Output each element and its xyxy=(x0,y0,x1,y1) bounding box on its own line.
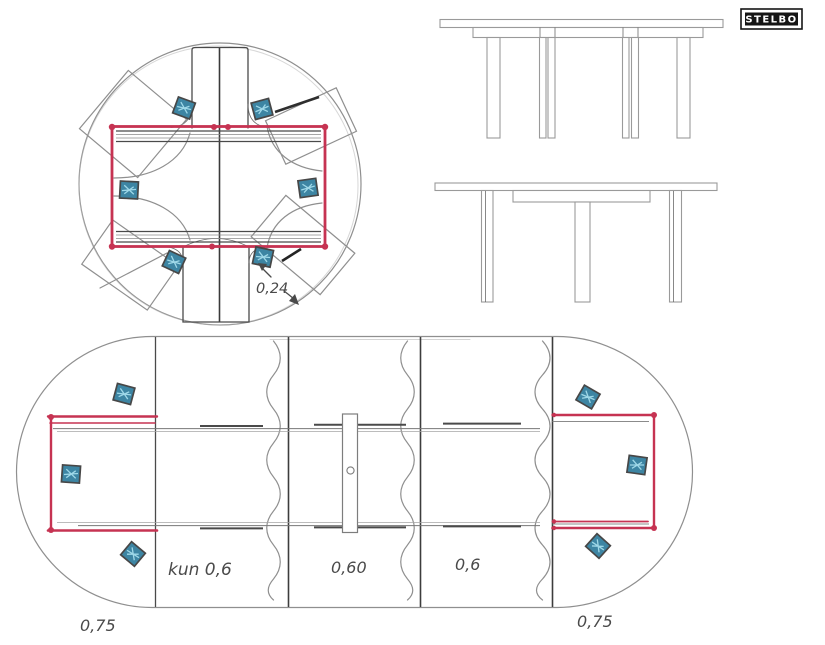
break-wave-line xyxy=(535,341,550,600)
table-leg xyxy=(575,202,590,302)
leg-block xyxy=(627,455,647,474)
tabletop-board xyxy=(435,183,717,191)
table-leg xyxy=(540,38,547,139)
leg-block xyxy=(113,383,135,404)
oval-table-plan-view: kun 0,6 0,60 0,6 xyxy=(17,337,693,608)
stelbo-logo: STELBO xyxy=(741,9,802,29)
arrow-shaft xyxy=(262,268,271,277)
elevation-extended-view xyxy=(440,20,723,139)
swing-flap-bottom-right xyxy=(251,195,355,294)
leg-block xyxy=(120,181,139,199)
table-leg xyxy=(548,38,555,139)
table-leg xyxy=(677,38,690,139)
leg-block xyxy=(121,542,146,567)
apron-rail xyxy=(513,191,650,203)
dim-label-middle-section: 0,60 xyxy=(331,558,367,577)
round-table-plan-view: 0,24 xyxy=(79,43,361,325)
bottom-leaf-tab xyxy=(162,239,270,323)
leg-block xyxy=(298,178,318,197)
table-leg xyxy=(487,38,500,139)
extension-frame-red xyxy=(109,124,328,250)
logo-text: STELBO xyxy=(745,15,797,26)
table-leg xyxy=(623,38,630,139)
break-wave-line xyxy=(267,341,281,600)
center-lock-bar xyxy=(343,414,358,533)
dim-label-left-end: 0,75 xyxy=(80,616,116,635)
leader-line xyxy=(282,249,301,261)
slide-rails-top xyxy=(116,131,321,142)
tabletop-board xyxy=(440,20,723,28)
drawing-sheet: STELBO xyxy=(0,0,825,645)
flap-edge-stroke xyxy=(275,97,319,112)
table-leg xyxy=(670,191,682,303)
swing-arc-top-right xyxy=(267,126,322,171)
dim-label-left-section: kun 0,6 xyxy=(168,560,232,580)
leg-block xyxy=(576,385,600,409)
dim-label-0-24: 0,24 xyxy=(256,281,288,297)
table-leg xyxy=(482,191,494,303)
apron-rail xyxy=(473,28,703,38)
elevation-round-view xyxy=(435,183,717,302)
dim-label-right-end: 0,75 xyxy=(577,612,613,631)
flap-edge-bottom-left xyxy=(100,253,167,288)
break-wave-line xyxy=(401,341,415,600)
dim-label-right-section: 0,6 xyxy=(455,555,480,574)
leg-block xyxy=(251,98,273,119)
leg-block xyxy=(586,534,611,559)
leg-block xyxy=(61,465,80,483)
swing-arc-bottom-right xyxy=(267,203,322,248)
swing-arc-bottom-left xyxy=(114,196,190,240)
sketch-canvas: STELBO xyxy=(0,0,825,645)
slide-rails-bottom xyxy=(116,232,321,243)
swing-arc-top-left xyxy=(114,133,190,178)
table-leg xyxy=(632,38,639,139)
